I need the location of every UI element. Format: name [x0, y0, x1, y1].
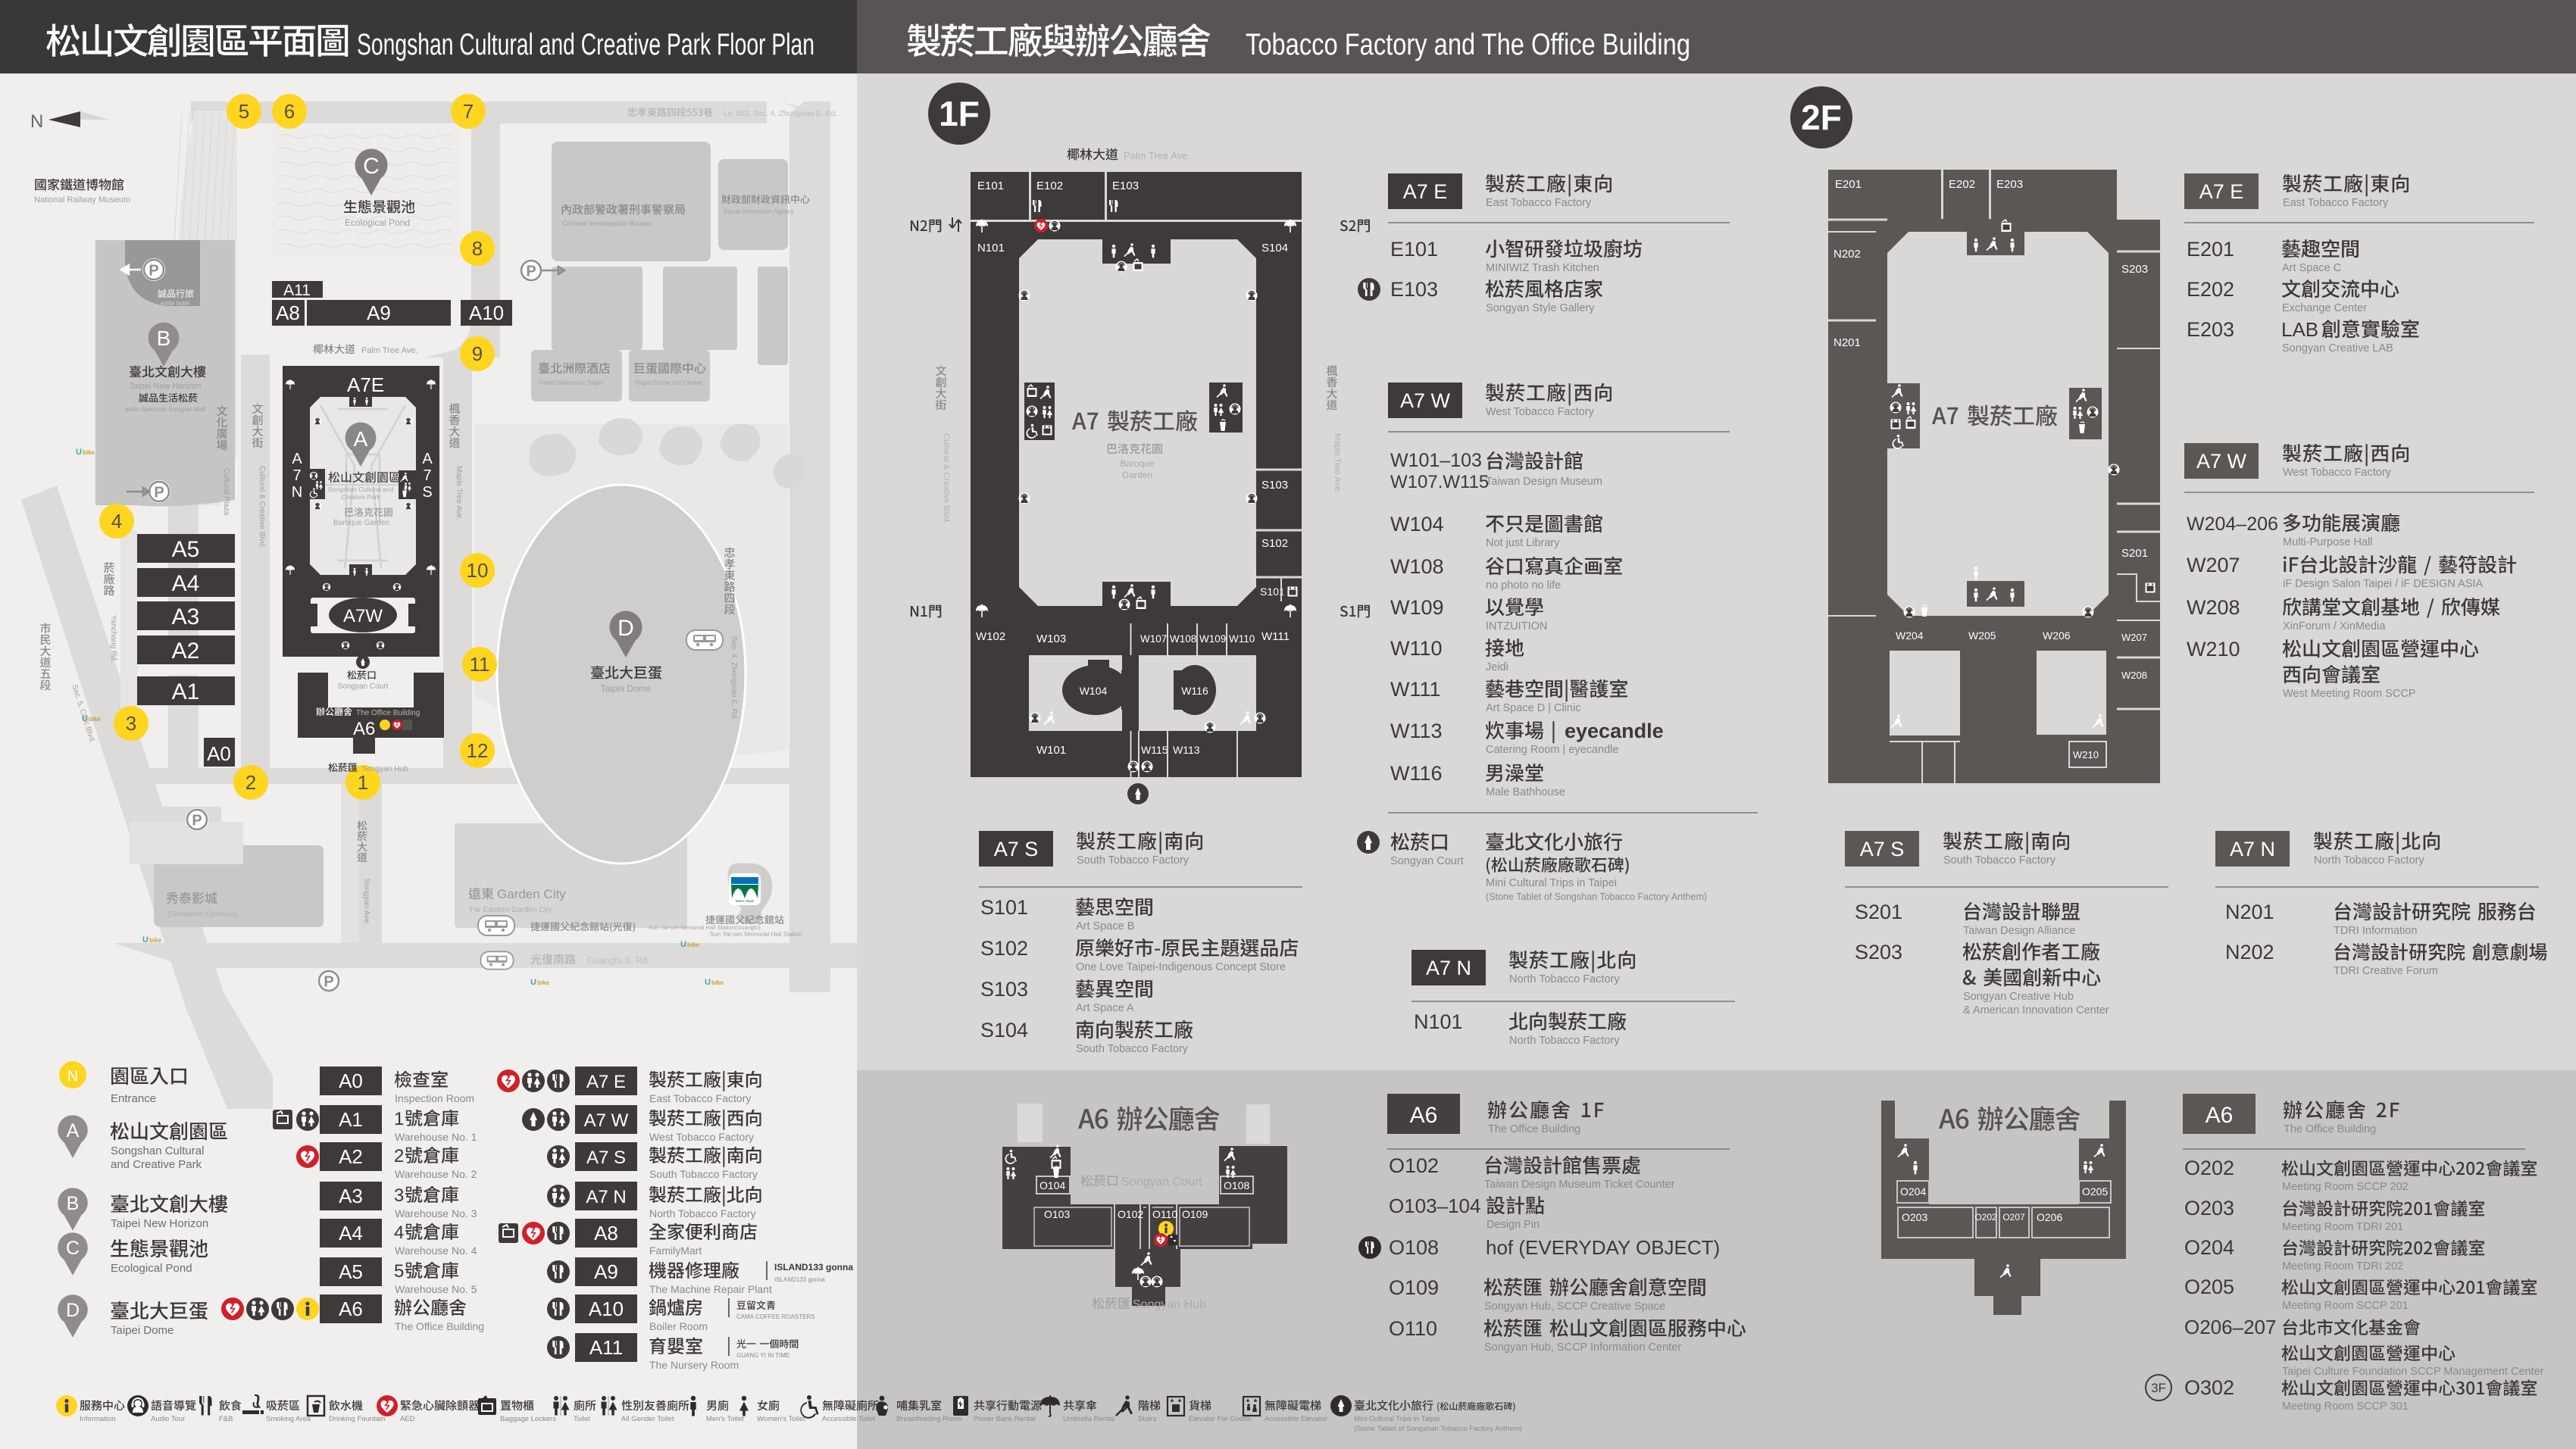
svg-text:Songyan Hub, SCCP Information: Songyan Hub, SCCP Information Center — [1484, 1341, 1681, 1354]
svg-text:O205: O205 — [2184, 1276, 2234, 1298]
svg-text:bike: bike — [149, 937, 162, 944]
svg-text:3: 3 — [126, 712, 136, 735]
svg-text:A7W: A7W — [343, 606, 383, 626]
svg-text:MINIWIZ Trash Kitchen: MINIWIZ Trash Kitchen — [1486, 262, 1599, 274]
svg-text:Accessible Elevator: Accessible Elevator — [1265, 1415, 1327, 1423]
svg-text:Metro Taipei: Metro Taipei — [736, 899, 754, 903]
svg-text:(Showtime Cinemas): (Showtime Cinemas) — [167, 910, 238, 919]
svg-text:O202: O202 — [2184, 1157, 2234, 1179]
svg-text:One Love Taipei-Indigenous Con: One Love Taipei-Indigenous Concept Store — [1076, 961, 1286, 973]
svg-text:Taipei Culture Foundation SCCP: Taipei Culture Foundation SCCP Managemen… — [2282, 1366, 2544, 1378]
svg-text:C: C — [363, 154, 380, 179]
svg-text:South Tobacco Factory: South Tobacco Factory — [1077, 854, 1190, 867]
svg-text:A8: A8 — [276, 301, 300, 324]
svg-text:N: N — [292, 484, 302, 501]
svg-text:AED: AED — [400, 1415, 415, 1423]
svg-text:E101: E101 — [1390, 238, 1438, 261]
svg-text:5: 5 — [394, 1261, 404, 1282]
svg-text:S104: S104 — [1261, 242, 1288, 255]
svg-text:9: 9 — [472, 342, 483, 365]
svg-text:The Office Building: The Office Building — [356, 709, 420, 717]
svg-text:Warehouse No. 3: Warehouse No. 3 — [395, 1207, 477, 1219]
svg-text:O110: O110 — [1389, 1317, 1437, 1340]
svg-text:Drinking Fountain: Drinking Fountain — [329, 1415, 385, 1423]
svg-text:Taiwan Design Museum: Taiwan Design Museum — [1486, 476, 1602, 488]
svg-text:W207: W207 — [2187, 554, 2240, 576]
svg-text:W107: W107 — [1140, 633, 1167, 645]
svg-text:A6: A6 — [1410, 1103, 1438, 1128]
svg-text:eslite Spectrum Songyan Mall: eslite Spectrum Songyan Mall — [125, 406, 205, 413]
svg-text:B: B — [67, 1193, 80, 1214]
svg-text:W104: W104 — [1390, 513, 1444, 536]
svg-text:S102: S102 — [1261, 537, 1288, 550]
svg-text:Art Space D | Clinic: Art Space D | Clinic — [1486, 702, 1580, 714]
svg-text:The Machine Repair Plant: The Machine Repair Plant — [649, 1283, 772, 1295]
svg-text:A5: A5 — [172, 537, 200, 562]
svg-text:A7 E: A7 E — [1403, 180, 1448, 203]
svg-text:W206: W206 — [2043, 629, 2071, 642]
svg-text:S104: S104 — [980, 1019, 1028, 1041]
svg-text:Cultural & Creative Blvd.: Cultural & Creative Blvd. — [942, 433, 951, 524]
svg-text:A7 W: A7 W — [1400, 389, 1451, 412]
svg-text:W103: W103 — [1036, 632, 1066, 645]
svg-text:O204: O204 — [1900, 1185, 1926, 1198]
svg-text:All Gender Toilet: All Gender Toilet — [621, 1415, 674, 1423]
svg-text:A3: A3 — [339, 1185, 363, 1207]
svg-text:O103–104: O103–104 — [1389, 1194, 1480, 1217]
svg-text:O206: O206 — [2037, 1211, 2062, 1223]
svg-text:Fiscal Information Agency: Fiscal Information Agency — [724, 208, 794, 215]
svg-text:S201: S201 — [2121, 547, 2148, 560]
svg-text:Garden: Garden — [1122, 470, 1152, 480]
svg-text:W111: W111 — [1261, 630, 1290, 643]
svg-text:Art Space C: Art Space C — [2282, 262, 2341, 274]
svg-text:and Creative Park: and Creative Park — [111, 1158, 202, 1171]
svg-text:O302: O302 — [2184, 1376, 2234, 1399]
svg-text:Smoking Area: Smoking Area — [266, 1415, 311, 1423]
svg-text:Exchange Center: Exchange Center — [2282, 302, 2367, 314]
svg-text:Warehouse No. 1: Warehouse No. 1 — [395, 1131, 477, 1143]
svg-text:A5: A5 — [339, 1260, 363, 1283]
svg-text:Palm Tree Ave.: Palm Tree Ave. — [361, 346, 417, 355]
svg-text:D: D — [66, 1300, 80, 1321]
svg-text:W110: W110 — [1390, 637, 1443, 660]
svg-text:XinForum / XinMedia: XinForum / XinMedia — [2283, 620, 2386, 632]
svg-text:Far Eastern Garden City: Far Eastern Garden City — [470, 906, 552, 914]
svg-text:Accessible Toilet: Accessible Toilet — [822, 1415, 875, 1423]
svg-text:O109: O109 — [1389, 1276, 1439, 1299]
svg-text:W107.W115: W107.W115 — [1390, 472, 1489, 492]
svg-text:Breastfeeding Room: Breastfeeding Room — [896, 1415, 962, 1423]
svg-text:E101: E101 — [977, 180, 1004, 192]
svg-text:South Tobacco Factory: South Tobacco Factory — [1076, 1043, 1189, 1055]
svg-text:Warehouse No. 4: Warehouse No. 4 — [395, 1244, 477, 1257]
svg-text:O108: O108 — [1224, 1179, 1249, 1191]
svg-text:(Stone Tablet of Songshan Toba: (Stone Tablet of Songshan Tobacco Factor… — [1486, 892, 1707, 902]
svg-text:3F: 3F — [2151, 1381, 2166, 1395]
svg-text:Meeting Room TDRI 202: Meeting Room TDRI 202 — [2282, 1260, 2403, 1273]
svg-text:Toilet: Toilet — [574, 1415, 591, 1423]
svg-text:iF Design Salon Taipei / iF DE: iF Design Salon Taipei / iF DESIGN ASIA — [2283, 578, 2483, 590]
svg-text:3: 3 — [394, 1185, 404, 1206]
svg-text:N101: N101 — [1414, 1010, 1463, 1033]
svg-text:Tobacco Factory and The Office: Tobacco Factory and The Office Building — [1246, 28, 1690, 61]
svg-text:ISLAND133 gonna: ISLAND133 gonna — [774, 1262, 853, 1273]
svg-text:O205: O205 — [2082, 1185, 2108, 1198]
svg-text:4: 4 — [394, 1223, 404, 1243]
svg-text:Taipei New Horizon: Taipei New Horizon — [111, 1217, 208, 1230]
svg-text:O102: O102 — [1389, 1154, 1439, 1177]
svg-text:W116: W116 — [1390, 762, 1443, 785]
svg-text:Songyan Hub: Songyan Hub — [362, 765, 408, 773]
svg-text:W109: W109 — [1390, 596, 1444, 619]
svg-text:A: A — [292, 451, 302, 467]
svg-text:F&B: F&B — [219, 1415, 233, 1423]
svg-text:W109: W109 — [1199, 633, 1226, 645]
svg-text:O108: O108 — [1389, 1236, 1439, 1259]
svg-text:Songyan Creative Hub: Songyan Creative Hub — [1963, 991, 2074, 1003]
svg-text:Audio Tour: Audio Tour — [151, 1415, 185, 1423]
svg-text:D: D — [617, 616, 634, 641]
svg-text:Boiler Room: Boiler Room — [649, 1320, 708, 1332]
svg-text:A0: A0 — [339, 1070, 363, 1092]
svg-text:E103: E103 — [1112, 180, 1139, 192]
svg-text:4: 4 — [111, 510, 122, 532]
svg-text:O204: O204 — [2184, 1236, 2234, 1259]
svg-text:A2: A2 — [339, 1145, 363, 1168]
svg-text:U: U — [82, 714, 88, 723]
svg-text:Warehouse No. 5: Warehouse No. 5 — [395, 1283, 477, 1295]
svg-text:Yanchang Rd.: Yanchang Rd. — [109, 615, 117, 663]
svg-text:FamilyMart: FamilyMart — [649, 1244, 702, 1257]
svg-text:W204: W204 — [1896, 629, 1924, 642]
svg-text:A7 N: A7 N — [586, 1187, 626, 1207]
svg-text:Catering Room | eyecandle: Catering Room | eyecandle — [1486, 744, 1618, 756]
svg-text:LAB: LAB — [2281, 318, 2318, 341]
svg-text:A7 S: A7 S — [586, 1148, 626, 1168]
svg-text:A: A — [67, 1120, 80, 1141]
svg-text:S201: S201 — [1855, 901, 1902, 923]
svg-text:2F: 2F — [1801, 98, 1842, 137]
svg-text:Art Space B: Art Space B — [1076, 920, 1134, 932]
svg-text:O103: O103 — [1044, 1208, 1070, 1220]
svg-text:U: U — [530, 978, 536, 987]
svg-text:E203: E203 — [2187, 318, 2234, 341]
svg-text:A7 E: A7 E — [2199, 180, 2244, 203]
svg-text:Mini Cultural Trips in Taipei: Mini Cultural Trips in Taipei — [1354, 1415, 1440, 1423]
svg-text:Taipei Dome: Taipei Dome — [601, 683, 652, 694]
svg-text:A7 W: A7 W — [584, 1110, 629, 1131]
svg-text:Inspection Room: Inspection Room — [395, 1092, 474, 1104]
svg-text:1: 1 — [358, 771, 368, 794]
svg-text:W113: W113 — [1390, 720, 1443, 742]
svg-text:A9: A9 — [594, 1260, 618, 1283]
svg-text:Criminal Investigation Bureau: Criminal Investigation Bureau — [562, 220, 652, 227]
svg-text:S101: S101 — [980, 896, 1028, 919]
svg-text:Taipei Dome: Taipei Dome — [111, 1324, 174, 1337]
svg-text:East Tobacco Factory: East Tobacco Factory — [2283, 197, 2389, 209]
svg-text:A7 N: A7 N — [1426, 957, 1471, 979]
svg-text:Creative Park: Creative Park — [341, 493, 380, 501]
svg-text:InterContinental Taipei: InterContinental Taipei — [539, 379, 604, 386]
svg-text:B: B — [157, 326, 171, 350]
svg-text:O202: O202 — [1974, 1212, 1997, 1223]
svg-text:Sun Yat-sen Memorial Hall Stat: Sun Yat-sen Memorial Hall Station(Guangf… — [649, 924, 761, 931]
svg-text:10: 10 — [467, 559, 489, 582]
svg-text:bike: bike — [711, 979, 724, 986]
svg-text:eslite hotel: eslite hotel — [161, 300, 189, 307]
svg-text:Guangfu S. Rd.: Guangfu S. Rd. — [587, 955, 650, 966]
svg-text:Songyan Court: Songyan Court — [1390, 855, 1464, 867]
svg-text:W115: W115 — [1141, 744, 1168, 756]
svg-text:A2: A2 — [172, 639, 200, 664]
svg-text:Entrance: Entrance — [111, 1092, 156, 1105]
svg-text:Cultural & Creative Blvd.: Cultural & Creative Blvd. — [258, 466, 266, 548]
svg-text:West Meeting Room SCCP: West Meeting Room SCCP — [2283, 688, 2415, 700]
svg-text:Men's Toilet: Men's Toilet — [706, 1415, 744, 1423]
svg-text:Sec. 4, Zhongxiao E. Rd.: Sec. 4, Zhongxiao E. Rd. — [730, 636, 738, 720]
svg-text:11: 11 — [470, 653, 490, 676]
svg-text:A: A — [354, 427, 368, 451]
svg-text:hof (EVERYDAY OBJECT): hof (EVERYDAY OBJECT) — [1486, 1236, 1720, 1259]
svg-text:1: 1 — [394, 1109, 404, 1129]
svg-text:12: 12 — [467, 739, 489, 762]
svg-text:Songyan Hub: Songyan Hub — [1133, 1298, 1206, 1311]
svg-text:E201: E201 — [2187, 238, 2234, 261]
svg-text:North Tobacco Factory: North Tobacco Factory — [1509, 973, 1620, 985]
svg-text:W101–103: W101–103 — [1390, 450, 1482, 471]
svg-text:W205: W205 — [1968, 629, 1996, 642]
svg-text:W108: W108 — [1390, 555, 1444, 578]
svg-text:W110: W110 — [1229, 633, 1255, 645]
svg-text:A4: A4 — [172, 571, 200, 596]
svg-text:A6: A6 — [339, 1298, 363, 1320]
svg-text:A3: A3 — [172, 604, 200, 629]
svg-text:bike: bike — [687, 942, 700, 948]
svg-text:West Tobacco Factory: West Tobacco Factory — [2283, 467, 2392, 479]
svg-text:Not just Library: Not just Library — [1486, 537, 1560, 549]
svg-text:E202: E202 — [1949, 178, 1975, 191]
svg-text:Songyan Ave.: Songyan Ave. — [362, 879, 370, 926]
svg-text:Cultural Plaza: Cultural Plaza — [222, 468, 230, 516]
svg-text:A7 W: A7 W — [2196, 450, 2247, 473]
svg-text:The Office Building: The Office Building — [395, 1320, 484, 1332]
svg-text:Taiwan Design Museum Ticket Co: Taiwan Design Museum Ticket Counter — [1484, 1179, 1675, 1191]
svg-text:W207: W207 — [2121, 632, 2147, 643]
svg-text:O203: O203 — [1902, 1211, 1927, 1223]
svg-text:O104: O104 — [1039, 1179, 1065, 1191]
svg-text:Elevator For Goods: Elevator For Goods — [1189, 1415, 1252, 1423]
svg-text:O203: O203 — [2184, 1197, 2234, 1219]
svg-text:Songshan Cultural: Songshan Cultural — [111, 1145, 204, 1157]
svg-text:O206–207: O206–207 — [2184, 1316, 2276, 1338]
svg-text:8: 8 — [472, 237, 483, 260]
svg-text:Ln. 553, Sec. 4, Zhongxiao E.: Ln. 553, Sec. 4, Zhongxiao E. Rd. — [724, 110, 837, 118]
svg-text:A9: A9 — [367, 301, 391, 324]
svg-text:A8: A8 — [594, 1222, 618, 1244]
svg-text:U: U — [76, 448, 82, 457]
svg-text:A7E: A7E — [347, 373, 384, 396]
svg-text:South Tobacco Factory: South Tobacco Factory — [649, 1168, 758, 1180]
svg-text:Meeting Room SCCP 202: Meeting Room SCCP 202 — [2282, 1181, 2409, 1193]
svg-text:W210: W210 — [2073, 749, 2099, 760]
svg-text:The Office Building: The Office Building — [2284, 1123, 2376, 1135]
svg-text:Meeting Room TDRI 201: Meeting Room TDRI 201 — [2282, 1221, 2403, 1233]
svg-text:Maple Tree Ave.: Maple Tree Ave. — [455, 466, 463, 520]
svg-text:TDRI Information: TDRI Information — [2334, 925, 2417, 937]
svg-text:N202: N202 — [1834, 248, 1861, 261]
svg-text:A7 N: A7 N — [2230, 838, 2275, 860]
svg-text:Multi-Purpose Hall: Multi-Purpose Hall — [2283, 536, 2372, 548]
svg-text:Palm Tree Ave.: Palm Tree Ave. — [1124, 150, 1190, 161]
svg-text:bike: bike — [83, 449, 95, 456]
svg-text:The Nursery Room: The Nursery Room — [649, 1359, 739, 1371]
svg-text:E202: E202 — [2187, 278, 2234, 301]
svg-text:Taiwan Design Alliance: Taiwan Design Alliance — [1963, 925, 2075, 937]
svg-text:Ecological Pond: Ecological Pond — [111, 1262, 192, 1275]
svg-text:INTZUITION: INTZUITION — [1486, 620, 1547, 632]
svg-text:Stairs: Stairs — [1138, 1415, 1157, 1423]
svg-text:eyecandle: eyecandle — [1565, 720, 1664, 742]
svg-text:Maple Tree Ave.: Maple Tree Ave. — [1333, 433, 1342, 493]
svg-text:West Tobacco Factory: West Tobacco Factory — [1486, 406, 1595, 418]
svg-text:U: U — [705, 978, 711, 987]
svg-text:A1: A1 — [172, 679, 200, 704]
svg-text:Songyan Court: Songyan Court — [1121, 1176, 1202, 1188]
svg-text:Ecological Pond: Ecological Pond — [345, 217, 410, 228]
svg-text:W111: W111 — [1390, 678, 1441, 701]
svg-text:S203: S203 — [2121, 263, 2148, 276]
svg-text:7: 7 — [463, 100, 474, 123]
svg-text:National Railway Museum: National Railway Museum — [34, 195, 130, 205]
svg-text:Power Bank Rental: Power Bank Rental — [974, 1415, 1035, 1423]
svg-text:W204–206: W204–206 — [2187, 514, 2278, 535]
svg-text:7: 7 — [292, 467, 301, 484]
svg-text:Mini Cultural Trips in Taipei: Mini Cultural Trips in Taipei — [1486, 877, 1617, 889]
svg-text:North Tobacco Factory: North Tobacco Factory — [2314, 854, 2424, 867]
svg-text:West Tobacco Factory: West Tobacco Factory — [649, 1131, 754, 1143]
svg-text:O110: O110 — [1152, 1208, 1177, 1220]
svg-text:S203: S203 — [1855, 941, 1902, 963]
svg-text:A4: A4 — [339, 1222, 363, 1244]
svg-text:& American Innovation Center: & American Innovation Center — [1963, 1004, 2109, 1016]
svg-text:W113: W113 — [1173, 744, 1200, 756]
svg-text:2: 2 — [245, 771, 256, 794]
svg-text:2: 2 — [394, 1146, 404, 1166]
svg-text:W208: W208 — [2121, 670, 2147, 681]
svg-text:A: A — [422, 451, 433, 467]
svg-text:Meeting Room SCCP 301: Meeting Room SCCP 301 — [2282, 1401, 2409, 1413]
svg-text:East Tobacco Factory: East Tobacco Factory — [649, 1092, 751, 1104]
svg-text:South Tobacco Factory: South Tobacco Factory — [1943, 854, 2056, 867]
svg-text:W102: W102 — [976, 630, 1005, 643]
svg-text:Songyan Creative LAB: Songyan Creative LAB — [2282, 342, 2393, 354]
svg-text:A1: A1 — [339, 1108, 363, 1131]
svg-text:O102: O102 — [1118, 1208, 1143, 1220]
svg-text:7: 7 — [423, 467, 431, 484]
svg-text:U: U — [142, 935, 148, 945]
svg-text:Umbrella Rental: Umbrella Rental — [1063, 1415, 1114, 1423]
svg-text:N201: N201 — [1834, 336, 1861, 349]
svg-text:6: 6 — [284, 100, 295, 123]
svg-text:A10: A10 — [469, 301, 504, 324]
svg-text:A6: A6 — [353, 719, 375, 739]
svg-text:S102: S102 — [980, 937, 1028, 960]
svg-text:North Tobacco Factory: North Tobacco Factory — [1509, 1035, 1620, 1047]
svg-text:N202: N202 — [2225, 941, 2274, 963]
svg-text:Songyan Hub, SCCP Creative Spa: Songyan Hub, SCCP Creative Space — [1484, 1301, 1665, 1313]
svg-text:N: N — [67, 1068, 78, 1085]
svg-text:North Tobacco Factory: North Tobacco Factory — [649, 1207, 756, 1219]
svg-text:TDRI Creative Forum: TDRI Creative Forum — [2334, 965, 2438, 977]
svg-text:C: C — [66, 1238, 80, 1259]
svg-text:Songshan Cultural and Creative: Songshan Cultural and Creative Park Floo… — [357, 28, 814, 61]
svg-text:W208: W208 — [2187, 596, 2240, 619]
svg-text:Meeting Room SCCP 201: Meeting Room SCCP 201 — [2282, 1300, 2409, 1312]
svg-text:A7 S: A7 S — [994, 838, 1039, 860]
svg-text:W210: W210 — [2187, 638, 2240, 660]
svg-text:O109: O109 — [1182, 1208, 1208, 1220]
svg-text:Garden City: Garden City — [497, 887, 566, 901]
svg-text:(Stone Tablet of Songshan Toba: (Stone Tablet of Songshan Tobacco Factor… — [1354, 1425, 1522, 1433]
svg-text:Design Pin: Design Pin — [1487, 1219, 1540, 1231]
svg-text:N101: N101 — [977, 242, 1005, 255]
svg-text:W101: W101 — [1036, 744, 1066, 757]
svg-text:Baggage Lockers: Baggage Lockers — [500, 1415, 556, 1423]
svg-text:Information: Information — [80, 1415, 116, 1423]
svg-text:5: 5 — [239, 100, 249, 123]
svg-text:Warehouse No. 2: Warehouse No. 2 — [395, 1168, 477, 1180]
svg-text:GUANG YI IN TIME: GUANG YI IN TIME — [736, 1352, 789, 1359]
svg-text:Songyan Style Gallery: Songyan Style Gallery — [1486, 302, 1595, 314]
svg-text:1F: 1F — [939, 94, 980, 133]
svg-text:E102: E102 — [1036, 180, 1063, 192]
svg-text:E201: E201 — [1835, 178, 1862, 191]
svg-text:Songshan Cultural and: Songshan Cultural and — [328, 486, 394, 493]
svg-text:East Tobacco Factory: East Tobacco Factory — [1486, 197, 1592, 209]
svg-text:Sun Yat-sen Memorial Hall Stat: Sun Yat-sen Memorial Hall Station — [710, 931, 802, 938]
svg-text:O207: O207 — [2002, 1212, 2025, 1223]
svg-text:Songyan Court: Songyan Court — [338, 682, 389, 691]
svg-text:S: S — [422, 484, 432, 501]
svg-text:A10: A10 — [589, 1298, 624, 1320]
svg-text:Jeidi: Jeidi — [1486, 661, 1508, 673]
svg-text:E203: E203 — [1996, 178, 2023, 191]
svg-text:ISLAND133 gonna: ISLAND133 gonna — [774, 1276, 825, 1283]
svg-text:Baroque Garden: Baroque Garden — [333, 519, 389, 527]
svg-text:N201: N201 — [2225, 901, 2274, 923]
svg-text:A7 S: A7 S — [1860, 838, 1905, 860]
svg-text:bike: bike — [537, 979, 550, 986]
svg-text:S103: S103 — [1261, 479, 1288, 492]
svg-text:Women's Toilet: Women's Toilet — [757, 1415, 805, 1423]
svg-text:A6: A6 — [2206, 1103, 2234, 1128]
svg-text:The Office Building: The Office Building — [1488, 1123, 1580, 1135]
svg-text:Baroque: Baroque — [1120, 458, 1155, 469]
svg-text:no photo no life: no photo no life — [1486, 579, 1561, 592]
svg-text:E103: E103 — [1390, 278, 1438, 301]
svg-text:S103: S103 — [980, 978, 1028, 1001]
svg-text:A11: A11 — [589, 1336, 623, 1359]
svg-text:W108: W108 — [1170, 633, 1196, 645]
svg-text:Male Bathhouse: Male Bathhouse — [1486, 786, 1565, 798]
svg-text:bike: bike — [89, 716, 102, 723]
svg-text:W104: W104 — [1080, 685, 1108, 697]
svg-text:A0: A0 — [207, 742, 231, 765]
svg-text:Taipei New Horizon: Taipei New Horizon — [130, 382, 202, 391]
svg-text:W116: W116 — [1181, 685, 1208, 697]
svg-text:U: U — [680, 940, 686, 949]
